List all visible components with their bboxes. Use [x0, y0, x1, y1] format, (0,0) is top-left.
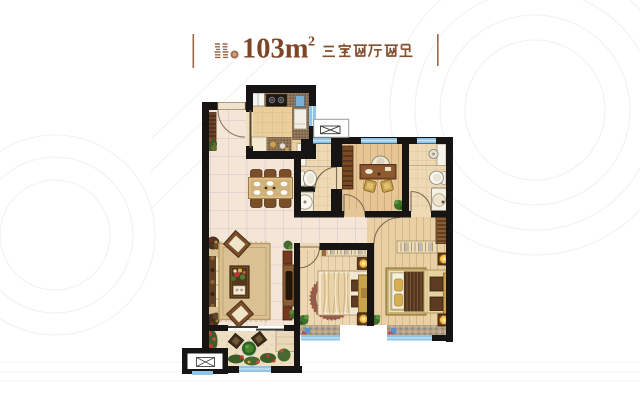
svg-text:2: 2 [308, 35, 315, 50]
svg-text:103m: 103m [242, 34, 309, 65]
